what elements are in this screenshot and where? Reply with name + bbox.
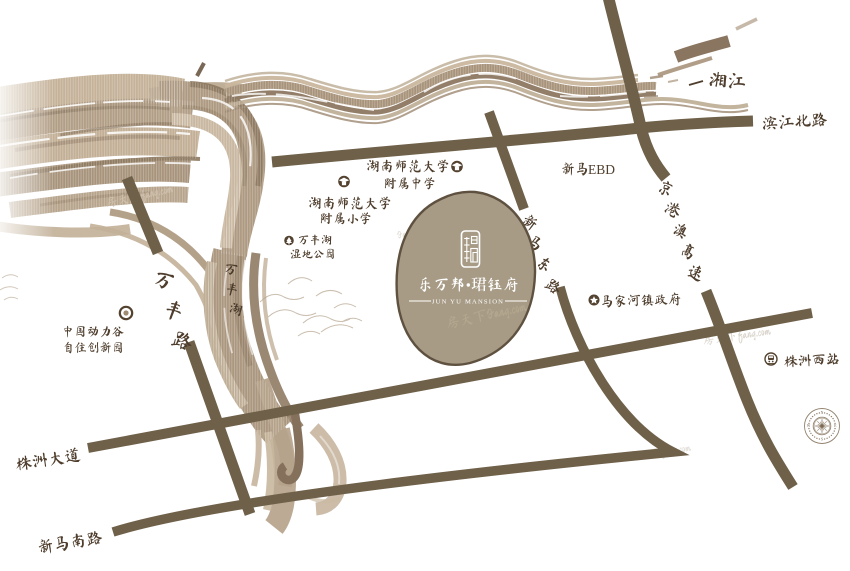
svg-text:JUN YU MANSION: JUN YU MANSION bbox=[432, 299, 504, 306]
svg-text:E: E bbox=[834, 424, 837, 428]
svg-text:N: N bbox=[821, 411, 824, 415]
svg-text:W: W bbox=[807, 424, 811, 428]
svg-text:EBD: EBD bbox=[588, 162, 615, 177]
svg-text:S: S bbox=[821, 438, 823, 442]
